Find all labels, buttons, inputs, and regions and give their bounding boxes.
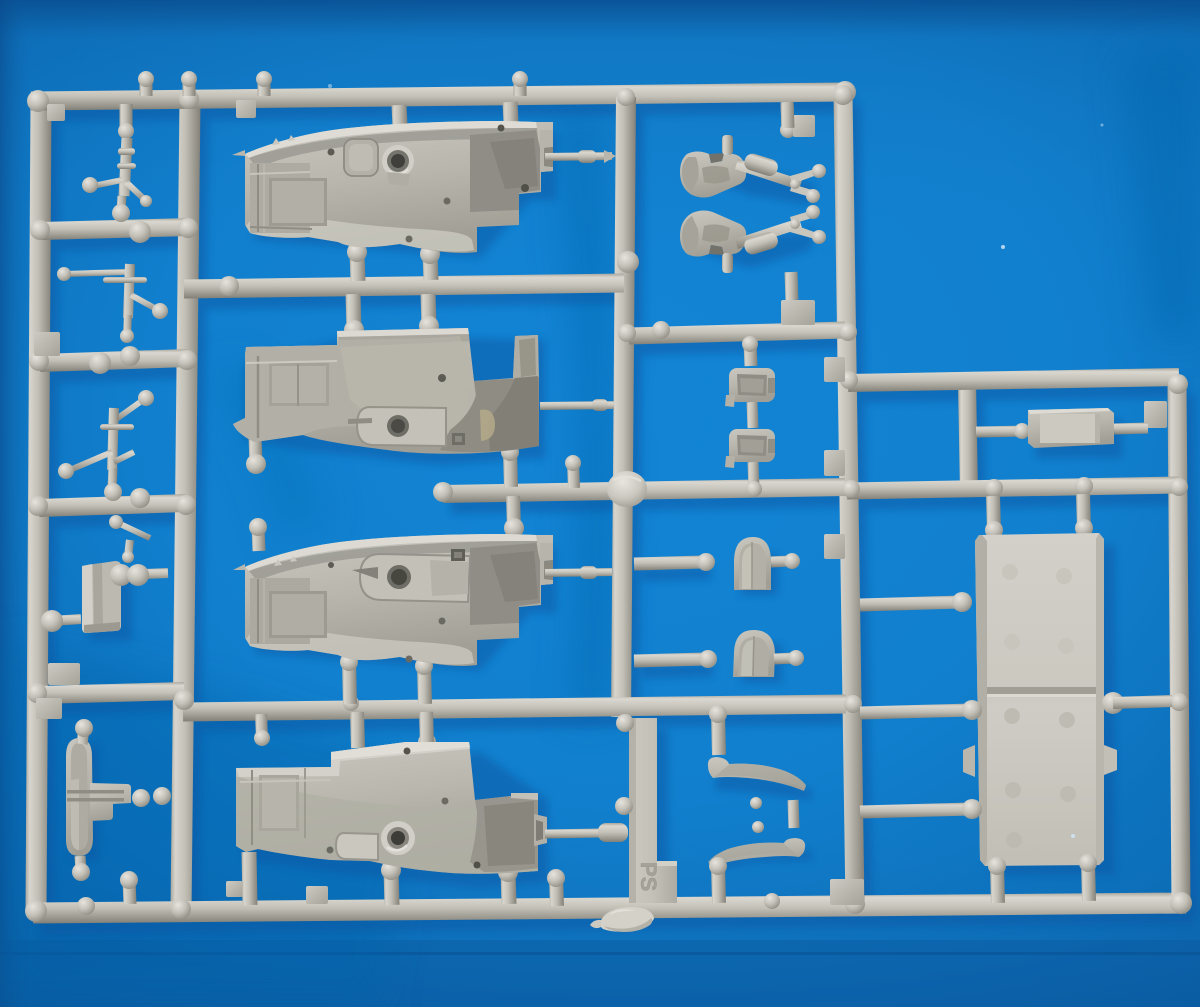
svg-text:PS: PS xyxy=(636,862,661,891)
